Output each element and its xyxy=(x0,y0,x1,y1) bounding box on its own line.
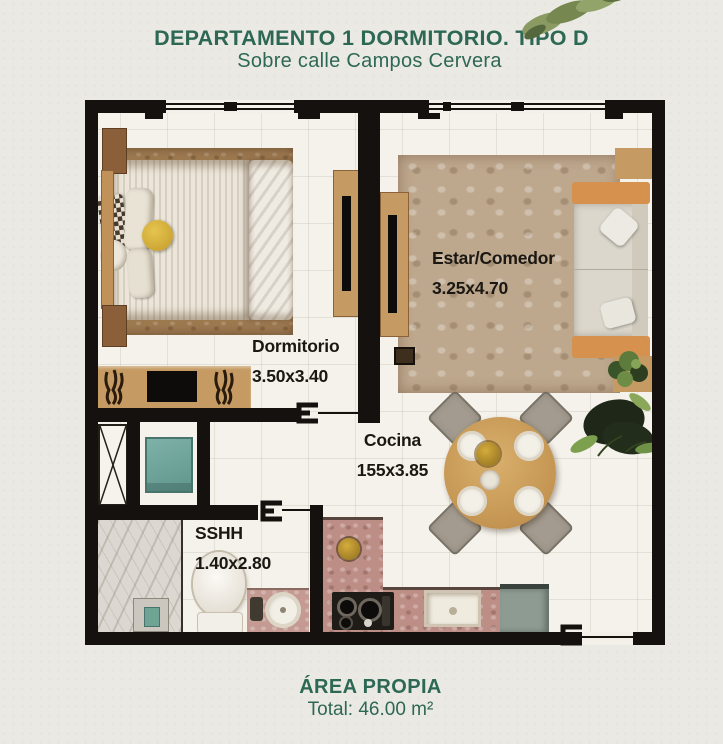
bathroom-vanity xyxy=(247,588,309,632)
room-dimensions: 155x3.85 xyxy=(335,456,450,486)
sink-drain xyxy=(449,607,457,615)
shower-fixture xyxy=(133,598,169,632)
tv-screen xyxy=(388,215,397,313)
floor-plan: Estar/Comedor 3.25x4.70 Dormitorio 3.50x… xyxy=(85,100,665,645)
plate xyxy=(457,486,487,516)
white-pillow xyxy=(126,247,154,299)
wall-nub xyxy=(145,113,163,119)
room-label-sshh: SSHH 1.40x2.80 xyxy=(195,519,271,579)
wall-nub xyxy=(418,113,440,119)
shaft-closet xyxy=(98,424,128,506)
door-opening-bedroom xyxy=(318,412,358,414)
sofa xyxy=(572,182,650,358)
soap-dispenser xyxy=(250,597,263,621)
wall-right xyxy=(652,100,665,645)
wall-bath-right xyxy=(310,505,323,632)
room-dimensions: 1.40x2.80 xyxy=(195,549,271,579)
plate xyxy=(514,431,544,461)
tv-screen xyxy=(147,371,197,402)
leaf-decoration-icon xyxy=(505,0,635,42)
door-opening-entrance xyxy=(582,632,633,645)
side-table xyxy=(615,148,652,179)
area-title: ÁREA PROPIA xyxy=(0,676,723,699)
plate xyxy=(514,486,544,516)
table-centerpiece xyxy=(476,442,500,466)
room-name: SSHH xyxy=(195,519,271,549)
nightstand xyxy=(102,128,127,174)
bedroom-dresser xyxy=(91,366,251,408)
wall-laundry-right xyxy=(197,422,210,506)
wall-laundry-left xyxy=(127,422,140,506)
shower-drain xyxy=(144,607,160,627)
wall-nub xyxy=(298,113,320,119)
door-jamb-icon xyxy=(560,624,584,646)
door-jamb-icon xyxy=(296,402,320,424)
closet-x-icon xyxy=(100,426,126,504)
burner xyxy=(358,598,382,622)
burner xyxy=(339,616,353,630)
sofa-armrest xyxy=(572,182,650,204)
refrigerator xyxy=(500,584,549,632)
window-living xyxy=(423,100,611,113)
sink-drain xyxy=(280,607,286,613)
room-label-dormitorio: Dormitorio 3.50x3.40 xyxy=(252,332,339,392)
headboard xyxy=(101,170,114,309)
room-name: Estar/Comedor xyxy=(432,244,555,274)
bed-duvet xyxy=(249,160,293,320)
room-name: Dormitorio xyxy=(252,332,339,362)
wall-switch xyxy=(394,347,415,365)
burner xyxy=(337,597,357,617)
room-label-cocina: Cocina 155x3.85 xyxy=(335,426,450,486)
stove xyxy=(332,592,394,630)
flyer-page: { "header": { "title": "DEPARTAMENTO 1 D… xyxy=(0,0,723,744)
wall-left xyxy=(85,100,98,645)
nightstand xyxy=(102,305,127,347)
wall-bath-top xyxy=(85,505,258,520)
counter-decor xyxy=(338,538,360,560)
wall-bedroom-bottom xyxy=(98,408,298,422)
stove-knob xyxy=(364,619,372,627)
door-opening-bathroom xyxy=(282,509,312,511)
area-total: Total: 46.00 m² xyxy=(0,699,723,721)
dried-plant-decor xyxy=(99,368,129,406)
sofa-seam xyxy=(574,269,648,270)
vanity-sink xyxy=(265,592,301,628)
wall-divider xyxy=(358,113,380,423)
washing-machine xyxy=(145,437,193,493)
room-label-estar-comedor: Estar/Comedor 3.25x4.70 xyxy=(432,244,555,304)
kitchen-sink xyxy=(424,590,481,627)
toilet-tank xyxy=(197,612,243,634)
tv-screen xyxy=(342,196,351,291)
page-subtitle: Sobre calle Campos Cervera xyxy=(0,50,723,73)
yellow-round-cushion xyxy=(142,220,173,251)
stove-panel xyxy=(382,596,390,626)
table-decor xyxy=(480,470,500,490)
dried-plant-decor xyxy=(209,368,239,406)
room-dimensions: 3.25x4.70 xyxy=(432,274,555,304)
room-name: Cocina xyxy=(335,426,450,456)
dining-table xyxy=(444,417,556,529)
window-bedroom xyxy=(160,100,300,113)
living-console xyxy=(380,192,409,337)
room-dimensions: 3.50x3.40 xyxy=(252,362,339,392)
large-plant-icon xyxy=(568,386,658,470)
wall-nub xyxy=(605,113,623,119)
bedroom-console xyxy=(333,170,360,317)
